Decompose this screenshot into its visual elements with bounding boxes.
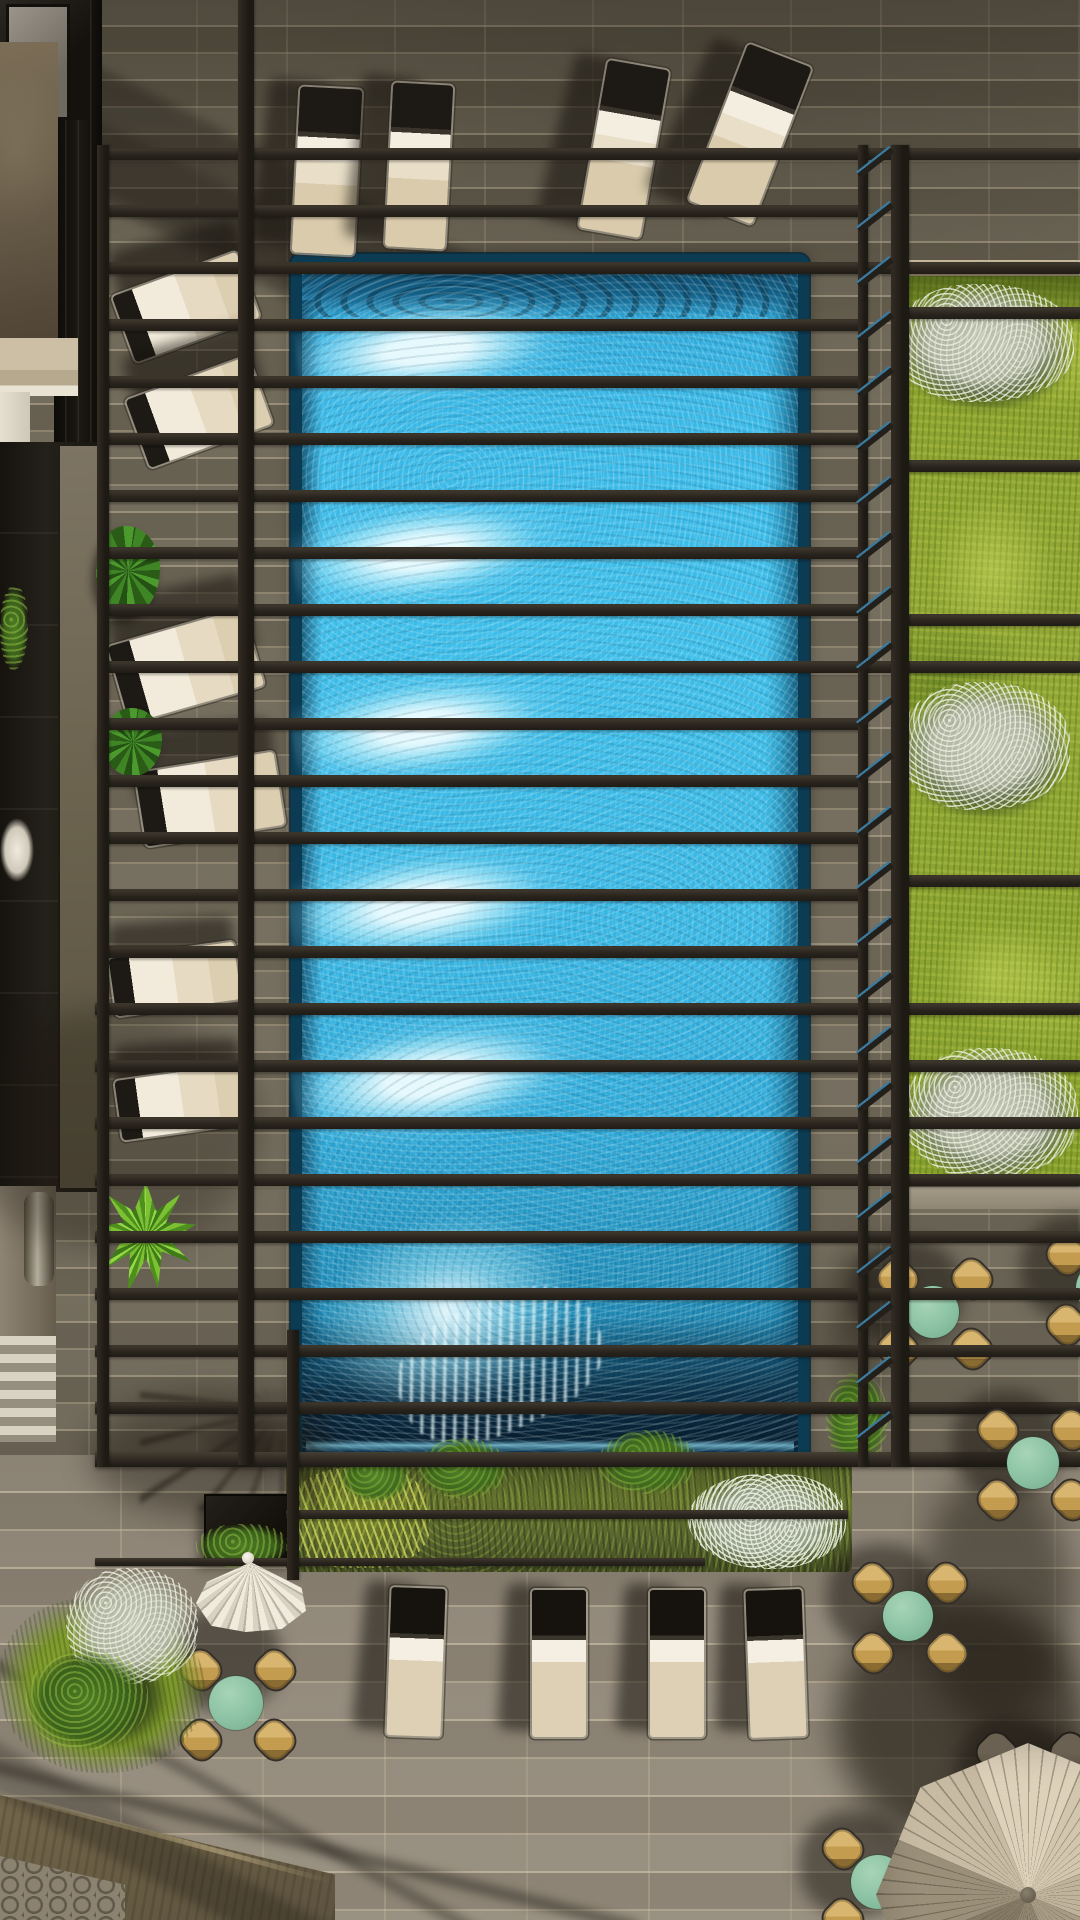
pergola-beam	[100, 718, 860, 730]
pergola-beam	[100, 832, 860, 844]
pergola-beam	[100, 946, 860, 958]
sun-lounger	[385, 83, 454, 250]
sun-lounger	[532, 1590, 586, 1737]
lawn-highlight	[908, 470, 1078, 670]
canopy-edge	[0, 338, 78, 396]
sage-bush	[898, 682, 1070, 810]
pergola-beam	[100, 376, 860, 388]
pergola-beam	[100, 547, 860, 559]
lit-fixture	[0, 818, 34, 882]
pergola-beam	[95, 1558, 705, 1566]
sun-lounger	[745, 1589, 806, 1738]
pergola-beam	[100, 205, 860, 217]
pergola-rail	[238, 0, 254, 1465]
pergola-beam	[100, 889, 860, 901]
pergola-rail	[287, 1330, 299, 1580]
steps	[0, 1336, 56, 1442]
pergola-beam	[286, 1510, 848, 1519]
pergola-beam	[100, 775, 860, 787]
cafe-table-top	[209, 1676, 263, 1730]
pergola-beam	[909, 614, 1080, 626]
pergola-beam	[100, 604, 860, 616]
stair-stringer-right	[891, 145, 909, 1467]
sage-bush	[892, 284, 1074, 402]
cafe-table-top	[1007, 1437, 1059, 1489]
pergola-beam	[909, 307, 1080, 319]
cafe-table-top	[883, 1591, 933, 1641]
pergola-beam	[909, 460, 1080, 472]
pergola-beam	[100, 319, 860, 331]
pool-courtyard-aerial-render	[0, 0, 1080, 1920]
sun-lounger	[386, 1587, 445, 1737]
umbrella-hub	[242, 1552, 254, 1564]
pergola-beam	[100, 490, 860, 502]
lawn-highlight	[910, 900, 1078, 1050]
pergola-rail	[97, 145, 109, 1467]
paver-edge	[906, 1185, 1080, 1209]
pool-bottom-edge	[306, 1440, 794, 1452]
umbrella-pole	[1020, 1887, 1036, 1903]
sun-lounger	[650, 1590, 704, 1737]
pergola-beam	[100, 433, 860, 445]
pergola-beam	[909, 875, 1080, 887]
shrub	[418, 1438, 508, 1498]
